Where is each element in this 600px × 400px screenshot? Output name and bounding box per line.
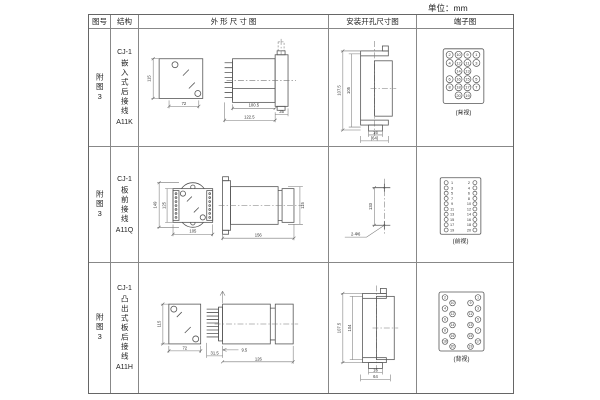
hole-layout: 133 2-Φ6 [345, 179, 390, 237]
terminal-number: 11 [469, 312, 473, 316]
terminal-number: 5 [477, 318, 479, 322]
terminal-grid: 2109141211314136161558181772019 [446, 51, 480, 99]
terminal-circle [444, 217, 448, 221]
terminal-circle [444, 196, 448, 200]
terminal-number: 18 [467, 223, 471, 227]
terminal-number: 20 [451, 345, 455, 349]
dim-front-width-2: 105 [189, 229, 197, 234]
terminal-circle [473, 186, 477, 190]
dim-front-outer-2: 149 [153, 201, 158, 209]
outline-drawing-a11h: 115 72 31.5 9.5 [139, 263, 328, 393]
front-view: 115 72 [156, 303, 202, 353]
terminal-number: 7 [477, 329, 479, 333]
dim-side-length-3: 126 [255, 356, 263, 361]
dim-front-height-3: 115 [156, 320, 161, 327]
dim-install-total-3: 64 [373, 374, 378, 379]
terminal-circle [473, 223, 477, 227]
header-structure: 结构 [111, 15, 139, 29]
terminal-circle [473, 207, 477, 211]
terminal-cell-3: 2109141211361413581615718201917 (背视) [417, 263, 513, 393]
terminal-number: 10 [451, 301, 455, 305]
dim-side-left-3: 31.5 [211, 350, 220, 355]
model-1: CJ-1 [117, 49, 132, 56]
terminal-circle [444, 186, 448, 190]
header-outline: 外 形 尺 寸 图 [139, 15, 329, 29]
dim-front-width-1: 72 [182, 101, 187, 106]
terminal-circle [473, 181, 477, 185]
cutout-profile [361, 41, 397, 136]
install-cell-2: 133 2-Φ6 [329, 147, 417, 263]
terminal-number: 17 [476, 340, 480, 344]
page: 单位：mm 图号 结构 外 形 尺 寸 图 安装开孔尺寸图 端子图 附图3 CJ… [0, 0, 600, 400]
terminal-number: 12 [456, 60, 460, 65]
terminal-number: 2 [444, 296, 446, 300]
install-drawing-a11k: 107.5 105 16 (64) [329, 29, 416, 146]
terminal-circle [444, 191, 448, 195]
dim-front-width-3: 72 [182, 345, 187, 350]
terminal-grid: 2109141211361413581615718201917 [442, 295, 481, 350]
structure-code-1: A11K [116, 119, 133, 126]
terminal-number: 10 [467, 202, 471, 206]
terminal-number: 4 [468, 186, 470, 190]
terminal-caption-3: (背视) [454, 355, 470, 363]
terminal-circle [473, 228, 477, 232]
figure-no-3: 附图3 [96, 313, 104, 343]
terminal-circle [473, 196, 477, 200]
front-view: 115 72 [147, 57, 203, 108]
outline-drawing-a11k: 115 72 [139, 29, 328, 146]
figure-no-cell-3: 附图3 [89, 263, 111, 393]
terminal-cell-2: 1223445667889101011121213141415161617181… [417, 147, 513, 263]
outline-cell-1: 115 72 [139, 29, 329, 147]
cutout-profile [363, 285, 399, 370]
terminal-number: 17 [450, 223, 454, 227]
terminal-number: 5 [451, 192, 453, 196]
structure-type-2: 板前接线 [121, 186, 129, 224]
install-cell-1: 107.5 105 16 (64) [329, 29, 417, 147]
terminal-grid: 1223445667889101011121213141415161617181… [444, 147, 478, 232]
dim-side-flange-1: 35 [279, 109, 284, 114]
dim-front-height-1: 115 [147, 75, 152, 82]
terminal-circle [473, 202, 477, 206]
dim-install-total-1: (64) [371, 135, 379, 140]
terminal-number: 19 [450, 228, 454, 232]
terminal-number: 1 [475, 52, 477, 57]
terminal-number: 17 [465, 85, 469, 90]
dim-install-slot-1: 16 [373, 130, 378, 135]
front-view: 149 125 105 [153, 181, 215, 236]
terminal-number: 3 [477, 307, 479, 311]
side-view: 156 115 [219, 177, 305, 240]
terminal-circle [473, 217, 477, 221]
model-2: CJ-1 [117, 176, 132, 183]
dim-install-outer-1: 107.5 [336, 85, 341, 96]
terminal-number: 3 [451, 186, 453, 190]
dim-side-inner-1: 100.5 [249, 102, 260, 107]
terminal-number: 12 [467, 207, 471, 211]
terminal-circle [444, 202, 448, 206]
structure-type-1: 嵌入式后接线 [121, 59, 129, 116]
terminal-number: 15 [469, 334, 473, 338]
terminal-number: 6 [444, 318, 446, 322]
unit-label: 单位：mm [428, 2, 468, 14]
header-install: 安装开孔尺寸图 [329, 15, 417, 29]
install-dims: 107.5 105 16 (64) [336, 49, 388, 142]
terminal-circle [473, 191, 477, 195]
dim-side-offset-3: 9.5 [241, 348, 247, 353]
terminal-number: 9 [451, 202, 453, 206]
structure-cell-3: CJ-1 凸出式板后接线 A11H [111, 263, 139, 393]
dim-side-length-2: 156 [255, 233, 263, 238]
header-terminal: 端子图 [417, 15, 513, 29]
figure-no-cell-1: 附图3 [89, 29, 111, 147]
dim-front-inner-2: 125 [162, 201, 167, 209]
terminal-number: 4 [444, 307, 446, 311]
terminal-number: 7 [475, 85, 477, 90]
dim-side-height-2: 115 [300, 201, 305, 208]
terminal-number: 11 [450, 207, 454, 211]
terminal-circle [444, 207, 448, 211]
terminal-number: 19 [469, 345, 473, 349]
terminal-number: 20 [460, 147, 478, 151]
terminal-circle [444, 181, 448, 185]
side-view: 100.5 35 122.5 [223, 39, 296, 122]
terminal-number: 12 [451, 312, 455, 316]
terminal-number: 18 [443, 340, 447, 344]
install-hole-label-2: 2-Φ6 [351, 232, 361, 237]
terminal-diagram-a11k: 2109141211314136161558181772019 (背视) [417, 29, 513, 146]
structure-code-2: A11Q [116, 227, 133, 234]
terminal-number: 6 [468, 192, 470, 196]
terminal-number: 7 [451, 197, 453, 201]
dim-install-outer-3: 107.5 [336, 322, 341, 333]
structure-cell-2: CJ-1 板前接线 A11Q [111, 147, 139, 263]
install-cell-3: 107.5 104 16 64 [329, 263, 417, 393]
terminal-circle [473, 212, 477, 216]
structure-cell-1: CJ-1 嵌入式后接线 A11K [111, 29, 139, 147]
terminal-circle [444, 223, 448, 227]
terminal-circle [444, 212, 448, 216]
install-drawing-a11q: 133 2-Φ6 [329, 147, 416, 262]
figure-no-1: 附图3 [96, 73, 104, 103]
terminal-diagram-a11h: 2109141211361413581615718201917 (背视) [417, 263, 513, 393]
terminal-number: 14 [467, 213, 471, 217]
outline-drawing-a11q: 149 125 105 [139, 147, 328, 262]
figure-no-cell-2: 附图3 [89, 147, 111, 263]
spec-table: 图号 结构 外 形 尺 寸 图 安装开孔尺寸图 端子图 附图3 CJ-1 嵌入式… [88, 14, 514, 394]
dim-install-spacing-2: 133 [368, 202, 373, 210]
figure-no-2: 附图3 [96, 190, 104, 220]
terminal-number: 16 [451, 334, 455, 338]
terminal-cell-1: 2109141211314136161558181772019 (背视) [417, 29, 513, 147]
terminal-number: 13 [450, 213, 454, 217]
install-drawing-a11h: 107.5 104 16 64 [329, 263, 416, 393]
terminal-caption-1: (背视) [456, 108, 472, 116]
terminal-number: 8 [468, 197, 470, 201]
model-3: CJ-1 [117, 285, 132, 292]
dim-install-inner-1: 105 [346, 86, 351, 94]
dim-install-slot-3: 16 [373, 367, 378, 372]
terminal-number: 1 [451, 181, 453, 185]
header-figure-no: 图号 [89, 15, 111, 29]
terminal-number: 2 [449, 52, 451, 57]
dim-side-total-1: 122.5 [244, 115, 255, 120]
outline-cell-2: 149 125 105 [139, 147, 329, 263]
terminal-number: 8 [444, 329, 446, 333]
terminal-number: 11 [465, 60, 469, 65]
terminal-caption-2: (前视) [453, 237, 469, 245]
structure-type-3: 凸出式板后接线 [121, 295, 129, 362]
terminal-number: 1 [477, 296, 479, 300]
terminal-number: 20 [467, 228, 471, 232]
structure-code-3: A11H [116, 364, 133, 371]
outline-cell-3: 115 72 31.5 9.5 [139, 263, 329, 393]
terminal-number: 15 [450, 218, 454, 222]
terminal-number: 9 [470, 301, 472, 305]
dim-install-inner-3: 104 [347, 324, 352, 332]
terminal-number: 16 [467, 218, 471, 222]
terminal-number: 13 [469, 323, 473, 327]
terminal-circle [444, 228, 448, 232]
terminal-number: 14 [451, 323, 455, 327]
side-view: 31.5 9.5 126 [207, 291, 299, 364]
terminal-diagram-a11q: 1223445667889101011121213141415161617181… [417, 147, 513, 262]
terminal-number: 2 [468, 181, 470, 185]
